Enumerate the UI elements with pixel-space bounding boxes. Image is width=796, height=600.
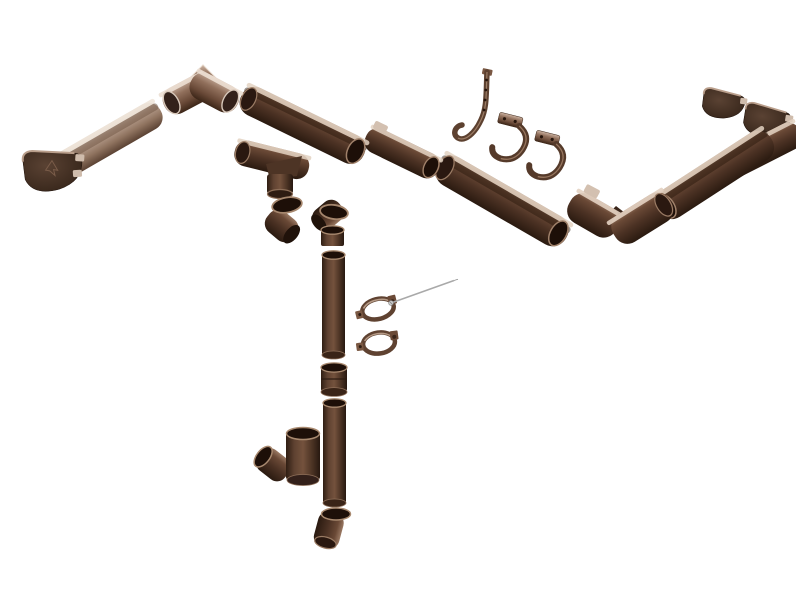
right-end-cap-a: [701, 87, 748, 121]
top-gutter-section-b: [361, 120, 446, 183]
rafter-hook-strap: [455, 68, 493, 139]
cap-clip-tab: [75, 154, 84, 162]
downpipe-section-b: [323, 399, 346, 507]
gutter-system-exploded-view: [0, 0, 796, 600]
inside-corner-90: [158, 65, 244, 119]
left-end-cap: [22, 147, 87, 192]
downpipe-shoe: [311, 508, 350, 551]
gutter-hook-a: [489, 112, 531, 163]
outside-corner-90: [562, 184, 679, 249]
gutter-hook-b: [526, 130, 568, 181]
strap-screw-hole: [484, 89, 487, 92]
pipe-clamp-a: [353, 294, 400, 324]
downpipe-elbow-a: [260, 195, 304, 248]
strap-screw-hole: [483, 109, 486, 112]
strap-screw-hole: [484, 99, 487, 102]
pipe-clamp-b: [355, 330, 401, 357]
cap-clip-tab: [73, 170, 82, 178]
strap-screw-hole: [485, 79, 488, 82]
right-gutter-section-b: [430, 150, 574, 252]
cap-clip-tab: [740, 98, 748, 105]
downpipe-coupler: [321, 363, 347, 397]
downpipe-socket: [321, 226, 344, 246]
mounting-screw-icon: [389, 279, 458, 305]
downpipe-tee: [250, 428, 320, 486]
downpipe-section-a: [322, 251, 345, 359]
product-image-canvas: [0, 0, 796, 600]
gutter-outlet-funnel: [232, 138, 312, 199]
